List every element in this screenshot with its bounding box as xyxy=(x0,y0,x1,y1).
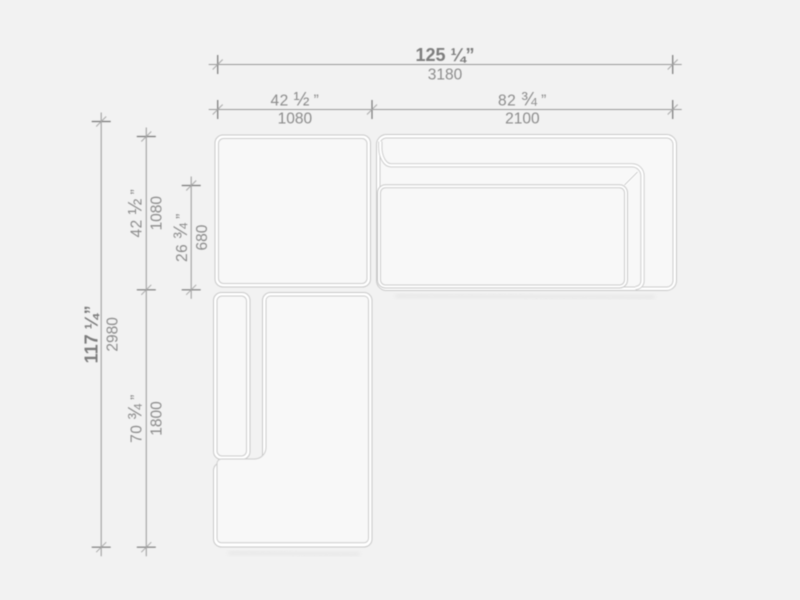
svg-text:1800: 1800 xyxy=(149,401,166,436)
svg-text:82 ¾ ”: 82 ¾ ” xyxy=(498,90,547,111)
svg-text:125 ¼”: 125 ¼” xyxy=(415,45,474,65)
svg-text:3180: 3180 xyxy=(428,67,463,84)
svg-text:117 ¼”: 117 ¼” xyxy=(82,305,102,363)
svg-text:680: 680 xyxy=(194,224,211,250)
svg-text:2100: 2100 xyxy=(505,111,540,128)
svg-text:42 ½ ”: 42 ½ ” xyxy=(126,189,147,238)
svg-text:1080: 1080 xyxy=(149,196,166,231)
svg-text:42 ½ ”: 42 ½ ” xyxy=(271,90,320,111)
svg-text:26 ¾ ”: 26 ¾ ” xyxy=(171,213,192,262)
svg-text:70 ¾ ”: 70 ¾ ” xyxy=(126,394,147,443)
svg-text:2980: 2980 xyxy=(105,317,122,352)
svg-text:1080: 1080 xyxy=(278,111,313,128)
